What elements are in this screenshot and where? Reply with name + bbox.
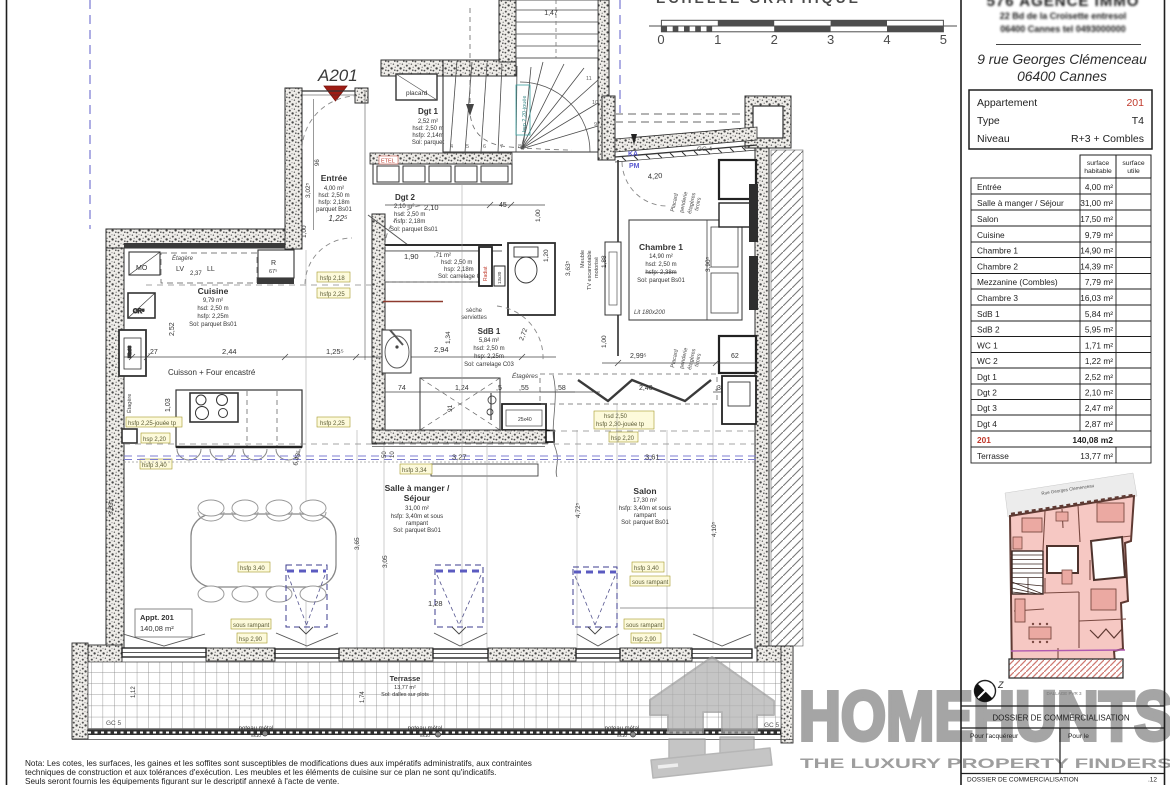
svg-text:31,00 m²: 31,00 m² <box>405 506 429 512</box>
svg-text:Sol: parquet Bs01: Sol: parquet Bs01 <box>637 278 685 284</box>
svg-text:hsfp 2,18: hsfp 2,18 <box>320 276 345 282</box>
svg-text:hsp 2,20: hsp 2,20 <box>143 437 167 443</box>
svg-text:SdB 1: SdB 1 <box>977 309 1000 319</box>
svg-text:0: 0 <box>657 32 664 47</box>
svg-text:Étagère: Étagère <box>172 255 194 262</box>
svg-text:hsp 2,90: hsp 2,90 <box>239 637 263 643</box>
svg-text:Sol: parquet: Sol: parquet <box>412 140 445 146</box>
svg-text:Étagères: Étagères <box>512 371 539 380</box>
svg-text:201: 201 <box>1126 97 1144 109</box>
svg-text:5,95 m²: 5,95 m² <box>1085 325 1113 335</box>
svg-text:2,99⁵: 2,99⁵ <box>630 353 647 360</box>
svg-text:Meuble: Meuble <box>580 250 586 268</box>
svg-text:3,65: 3,65 <box>354 537 361 550</box>
svg-text:sèche: sèche <box>466 308 483 314</box>
svg-text:4: 4 <box>883 32 890 47</box>
svg-text:25x40: 25x40 <box>518 417 532 423</box>
svg-text:Cuisson + Four encastré: Cuisson + Four encastré <box>168 368 256 377</box>
svg-text:hsfp 2,25: hsfp 2,25 <box>320 292 345 298</box>
svg-text:DOSSIER DE COMMERCIALISATION: DOSSIER DE COMMERCIALISATION <box>967 777 1079 784</box>
svg-text:2,37: 2,37 <box>190 271 202 277</box>
svg-text:hsd: 2,50 m: hsd: 2,50 m <box>441 260 472 266</box>
svg-text:WC 2: WC 2 <box>977 356 998 366</box>
svg-text:8x10: 8x10 <box>617 733 627 738</box>
svg-text:sous rampant: sous rampant <box>626 623 663 629</box>
svg-text:hsfp 3,34: hsfp 3,34 <box>402 468 427 474</box>
svg-text:1,03: 1,03 <box>165 398 172 412</box>
svg-text:1,47: 1,47 <box>544 10 558 17</box>
svg-text:3,53⁵: 3,53⁵ <box>108 499 115 515</box>
svg-text:hsp 2,20: hsp 2,20 <box>611 436 635 442</box>
svg-text:91: 91 <box>447 404 454 412</box>
svg-text:Salle à manger /: Salle à manger / <box>385 483 450 493</box>
svg-text:motorisé: motorisé <box>594 257 600 278</box>
svg-text:Chambre 3: Chambre 3 <box>977 293 1018 303</box>
svg-text:1,28: 1,28 <box>428 599 443 608</box>
svg-text:576 AGENCE IMMO: 576 AGENCE IMMO <box>987 0 1140 10</box>
svg-text:4: 4 <box>450 144 453 150</box>
svg-text:hsfp: 2,38m: hsfp: 2,38m <box>645 270 676 276</box>
svg-text:parquet Bs01: parquet Bs01 <box>316 207 352 213</box>
svg-text:Salle à manger / Séjour: Salle à manger / Séjour <box>977 198 1064 208</box>
svg-text:GC 5: GC 5 <box>106 720 122 727</box>
svg-text:1,00: 1,00 <box>301 225 308 238</box>
svg-text:OR⁵: OR⁵ <box>133 308 145 315</box>
svg-text:2,52: 2,52 <box>169 322 176 336</box>
svg-text:,55: ,55 <box>519 385 529 392</box>
svg-text:hsfp: 3,40m et sous: hsfp: 3,40m et sous <box>619 506 671 512</box>
svg-text:14,90 m²: 14,90 m² <box>649 254 673 260</box>
svg-text:3,05: 3,05 <box>382 555 389 568</box>
svg-text:3,02⁵: 3,02⁵ <box>305 182 312 198</box>
svg-text:11: 11 <box>586 76 592 82</box>
svg-text:hsfp 3,40: hsfp 3,40 <box>142 463 167 469</box>
svg-text:placard: placard <box>406 90 428 97</box>
svg-text:10: 10 <box>390 451 396 458</box>
svg-text:sous rampant: sous rampant <box>632 580 669 586</box>
svg-text:hsd: 2,50 m: hsd: 2,50 m <box>394 212 425 218</box>
svg-text:Cuisine: Cuisine <box>977 230 1005 240</box>
svg-text:rampant: rampant <box>634 513 656 519</box>
svg-text:A201: A201 <box>317 66 358 85</box>
svg-text:hsfp 2,30-jouée tp: hsfp 2,30-jouée tp <box>596 422 645 428</box>
svg-text:62: 62 <box>731 353 739 360</box>
svg-text:hsd: 2,50 m: hsd: 2,50 m <box>473 346 504 352</box>
svg-text:Chambre 2: Chambre 2 <box>977 262 1018 272</box>
svg-text:10: 10 <box>592 100 598 106</box>
svg-text:techniques de construction et: techniques de construction et aux toléra… <box>25 768 496 777</box>
svg-text:14,39 m²: 14,39 m² <box>1080 262 1113 272</box>
svg-text:Sol: parquet Bs01: Sol: parquet Bs01 <box>621 520 669 526</box>
svg-text:Terrasse: Terrasse <box>977 451 1009 461</box>
svg-text:1: 1 <box>714 32 721 47</box>
svg-text:hsd: 2,50 m: hsd: 2,50 m <box>412 126 443 132</box>
svg-text:SdB 2: SdB 2 <box>977 325 1000 335</box>
svg-text:3,90⁵: 3,90⁵ <box>705 256 712 272</box>
svg-text:1,20: 1,20 <box>543 249 550 262</box>
svg-text:Radiat: Radiat <box>483 266 489 281</box>
svg-text:KA: KA <box>628 151 638 158</box>
svg-text:hsfp: 2,14m: hsfp: 2,14m <box>412 133 443 139</box>
svg-text:Dgt 1: Dgt 1 <box>977 372 997 382</box>
svg-text:,71 m²: ,71 m² <box>434 253 451 259</box>
svg-text:2,52 m²: 2,52 m² <box>1085 372 1113 382</box>
svg-text:Type: Type <box>977 115 1000 127</box>
svg-text:hsd: 2,50 m: hsd: 2,50 m <box>645 262 676 268</box>
svg-text:14,90 m²: 14,90 m² <box>1080 246 1113 256</box>
svg-text:hsfp: 2,18m: hsfp: 2,18m <box>394 219 425 225</box>
svg-text:5,84 m²: 5,84 m² <box>479 338 499 344</box>
svg-text:Salon: Salon <box>633 486 656 496</box>
svg-text:hsfp 3,40: hsfp 3,40 <box>634 566 659 572</box>
svg-text:2,52 m²: 2,52 m² <box>418 119 438 125</box>
svg-text:,27: ,27 <box>148 349 158 356</box>
svg-text:hsfp: 2,25m: hsfp: 2,25m <box>197 314 228 320</box>
svg-text:55x63: 55x63 <box>127 345 132 358</box>
svg-text:hsp: 2,25m: hsp: 2,25m <box>474 354 504 360</box>
svg-text:Nota: Les cotes, les surfaces: Nota: Les cotes, les surfaces, les gaine… <box>25 759 532 768</box>
svg-text:1,74: 1,74 <box>360 691 366 703</box>
svg-text:DALLAGE PVR 3: DALLAGE PVR 3 <box>1046 691 1082 696</box>
svg-text:9: 9 <box>594 122 597 128</box>
svg-text:3,61: 3,61 <box>645 453 660 462</box>
svg-text:Z: Z <box>997 680 1004 690</box>
svg-text:67⁵: 67⁵ <box>269 268 277 275</box>
svg-text:2,10 m²: 2,10 m² <box>1085 388 1113 398</box>
svg-text:T4: T4 <box>1132 115 1144 127</box>
svg-text:45: 45 <box>499 202 507 209</box>
svg-text:17,50 m²: 17,50 m² <box>1080 214 1113 224</box>
svg-text:7: 7 <box>500 144 503 150</box>
svg-text:ETEL: ETEL <box>381 159 395 165</box>
svg-text:06400 Cannes: 06400 Cannes <box>1017 69 1107 84</box>
svg-text:1,71 m²: 1,71 m² <box>1085 341 1113 351</box>
svg-text:1,00: 1,00 <box>535 209 542 222</box>
svg-text:1,12: 1,12 <box>131 686 137 698</box>
svg-text:Appartement: Appartement <box>977 97 1037 109</box>
svg-text:LV: LV <box>176 266 184 273</box>
svg-text:4,00 m²: 4,00 m² <box>1085 182 1113 192</box>
svg-text:Niveau: Niveau <box>977 133 1010 145</box>
svg-text:2,94: 2,94 <box>434 345 449 354</box>
svg-text:8: 8 <box>518 144 521 150</box>
svg-text:hsp 2,90: hsp 2,90 <box>633 637 657 643</box>
svg-text:hsfp 2,25-jouée tp: hsfp 2,25-jouée tp <box>128 421 177 427</box>
svg-text:Dgt 3: Dgt 3 <box>977 403 997 413</box>
svg-text:8x10: 8x10 <box>251 733 261 738</box>
svg-text:Appt. 201: Appt. 201 <box>140 613 174 622</box>
svg-text:hsp 2,20-jouée: hsp 2,20-jouée <box>522 96 528 132</box>
svg-text:Chambre 1: Chambre 1 <box>639 242 683 252</box>
svg-text:6: 6 <box>483 144 486 150</box>
svg-text:poteau métal: poteau métal <box>605 726 640 732</box>
svg-text:1,34: 1,34 <box>445 331 452 344</box>
svg-text:poteau métal: poteau métal <box>408 726 443 732</box>
svg-text:1,00: 1,00 <box>601 335 608 348</box>
svg-text:Seuls seront fournis les équip: Seuls seront fournis les équipements fig… <box>25 777 339 785</box>
svg-text:habitable: habitable <box>1084 168 1112 175</box>
svg-text:06400 Cannes tel 0493000000: 06400 Cannes tel 0493000000 <box>1000 24 1126 34</box>
svg-text:DOSSIER DE COMMERCIALISATION: DOSSIER DE COMMERCIALISATION <box>992 714 1129 723</box>
svg-text:13x30: 13x30 <box>497 271 502 284</box>
svg-text:4,20: 4,20 <box>648 171 663 181</box>
svg-text:Sol: parquet Bs01: Sol: parquet Bs01 <box>390 227 438 233</box>
svg-text:hsd: 2,50 m: hsd: 2,50 m <box>318 193 349 199</box>
svg-text:1,22⁵: 1,22⁵ <box>329 214 349 223</box>
svg-text:Séjour: Séjour <box>404 493 431 503</box>
svg-text:Dgt 2: Dgt 2 <box>395 193 416 202</box>
svg-text:Pour l'acquéreur: Pour l'acquéreur <box>970 733 1019 740</box>
svg-text:hsfp: 2,18m: hsfp: 2,18m <box>318 200 349 206</box>
svg-text:rampant: rampant <box>406 521 428 527</box>
svg-text:16,03 m²: 16,03 m² <box>1080 293 1113 303</box>
svg-text:1,25⁵: 1,25⁵ <box>326 347 344 356</box>
svg-text:ECHELLE GRAPHIQUE: ECHELLE GRAPHIQUE <box>656 0 861 6</box>
svg-text:2,44: 2,44 <box>222 347 237 356</box>
svg-text:hsfp: 3,40m et sous: hsfp: 3,40m et sous <box>391 514 443 520</box>
svg-text:Cuisine: Cuisine <box>198 286 229 296</box>
svg-text:hsd: 2,50 m: hsd: 2,50 m <box>197 306 228 312</box>
svg-text:2,10: 2,10 <box>424 203 439 212</box>
svg-text:Sol: dalles sur plots: Sol: dalles sur plots <box>381 692 429 698</box>
svg-text:3,27: 3,27 <box>452 453 467 462</box>
svg-text:SdB 1: SdB 1 <box>478 327 501 336</box>
svg-text:9,79 m²: 9,79 m² <box>203 298 223 304</box>
svg-text:Entrée: Entrée <box>977 182 1002 192</box>
svg-text:hsfp 3,40: hsfp 3,40 <box>240 566 265 572</box>
svg-text:Entrée: Entrée <box>321 173 348 183</box>
svg-text:surface: surface <box>1087 160 1110 167</box>
svg-text:1,22 m²: 1,22 m² <box>1085 356 1113 366</box>
svg-text:WC 1: WC 1 <box>977 341 998 351</box>
svg-text:hsd 2,50: hsd 2,50 <box>604 414 628 420</box>
svg-text:8x10: 8x10 <box>420 733 430 738</box>
svg-text:5: 5 <box>466 144 469 150</box>
svg-text:2,87 m²: 2,87 m² <box>1085 419 1113 429</box>
svg-text:,5: ,5 <box>496 385 502 392</box>
svg-text:140,08 m²: 140,08 m² <box>140 624 174 633</box>
svg-text:hsfp 2,25: hsfp 2,25 <box>320 421 345 427</box>
svg-text:74: 74 <box>398 385 406 392</box>
svg-text:2,47 m²: 2,47 m² <box>1085 403 1113 413</box>
svg-text:4,72⁵: 4,72⁵ <box>575 502 582 518</box>
svg-text:Terrasse: Terrasse <box>390 674 421 683</box>
svg-text:THE LUXURY PROPERTY FINDERS: THE LUXURY PROPERTY FINDERS <box>800 756 1170 771</box>
svg-text:Dgt 1: Dgt 1 <box>418 107 439 116</box>
svg-text:Dgt 2: Dgt 2 <box>977 388 997 398</box>
svg-text:1,88: 1,88 <box>601 255 608 268</box>
svg-text:hsp: 2,18m: hsp: 2,18m <box>444 267 474 273</box>
svg-text:TV escamotable: TV escamotable <box>587 250 593 290</box>
svg-text:4,10⁵: 4,10⁵ <box>711 521 718 537</box>
svg-text:2: 2 <box>771 32 778 47</box>
svg-text:Chambre 1: Chambre 1 <box>977 246 1018 256</box>
svg-text:Salon: Salon <box>977 214 999 224</box>
svg-text:17,30 m²: 17,30 m² <box>633 498 657 504</box>
svg-text:serviettes: serviettes <box>461 315 487 321</box>
svg-text:Dgt 4: Dgt 4 <box>977 419 997 429</box>
svg-text:R: R <box>271 260 276 267</box>
svg-text:PM: PM <box>629 163 640 170</box>
svg-text:3: 3 <box>827 32 834 47</box>
svg-text:Sol: parquet Bs01: Sol: parquet Bs01 <box>189 322 237 328</box>
svg-text:.12: .12 <box>1148 777 1157 784</box>
svg-text:poteau métal: poteau métal <box>239 726 274 732</box>
svg-text:,58: ,58 <box>556 385 566 392</box>
svg-text:5: 5 <box>940 32 947 47</box>
svg-text:9 rue Georges Clémenceau: 9 rue Georges Clémenceau <box>977 52 1147 67</box>
svg-text:1,90: 1,90 <box>404 252 419 261</box>
svg-text:Mezzanine (Combles): Mezzanine (Combles) <box>977 277 1058 287</box>
svg-text:Sol: parquet Bs01: Sol: parquet Bs01 <box>393 528 441 534</box>
svg-text:Lit 180x200: Lit 180x200 <box>634 310 666 316</box>
svg-text:utile: utile <box>1127 168 1140 175</box>
svg-text:96: 96 <box>315 159 321 166</box>
svg-text:7,79 m²: 7,79 m² <box>1085 277 1113 287</box>
svg-text:5,84 m²: 5,84 m² <box>1085 309 1113 319</box>
svg-text:Sol: carrelage C03: Sol: carrelage C03 <box>464 362 514 368</box>
svg-text:13,77 m²: 13,77 m² <box>394 685 416 691</box>
svg-text:Pour le: Pour le <box>1068 733 1089 740</box>
svg-text:LL: LL <box>207 266 215 273</box>
svg-text:4,00 m²: 4,00 m² <box>324 186 344 192</box>
svg-text:9,79 m²: 9,79 m² <box>1085 230 1113 240</box>
svg-text:201: 201 <box>977 435 991 445</box>
svg-text:140,08 m2: 140,08 m2 <box>1072 435 1113 445</box>
svg-text:22 Bd de la Croisette entresol: 22 Bd de la Croisette entresol <box>1000 11 1127 21</box>
svg-text:sous rampant: sous rampant <box>233 623 270 629</box>
svg-text:31,00 m²: 31,00 m² <box>1080 198 1113 208</box>
svg-text:3,63⁵: 3,63⁵ <box>565 260 572 276</box>
svg-text:surface: surface <box>1122 160 1145 167</box>
svg-text:2,40: 2,40 <box>639 385 653 392</box>
svg-text:13,77 m²: 13,77 m² <box>1080 451 1113 461</box>
svg-text:MO: MO <box>136 265 148 272</box>
svg-text:Étagère: Étagère <box>126 394 133 413</box>
svg-text:GC 4: GC 4 <box>697 146 713 153</box>
svg-text:GC 5: GC 5 <box>764 722 780 729</box>
svg-text:50: 50 <box>382 451 388 458</box>
svg-text:R+3 + Combles: R+3 + Combles <box>1071 133 1144 145</box>
